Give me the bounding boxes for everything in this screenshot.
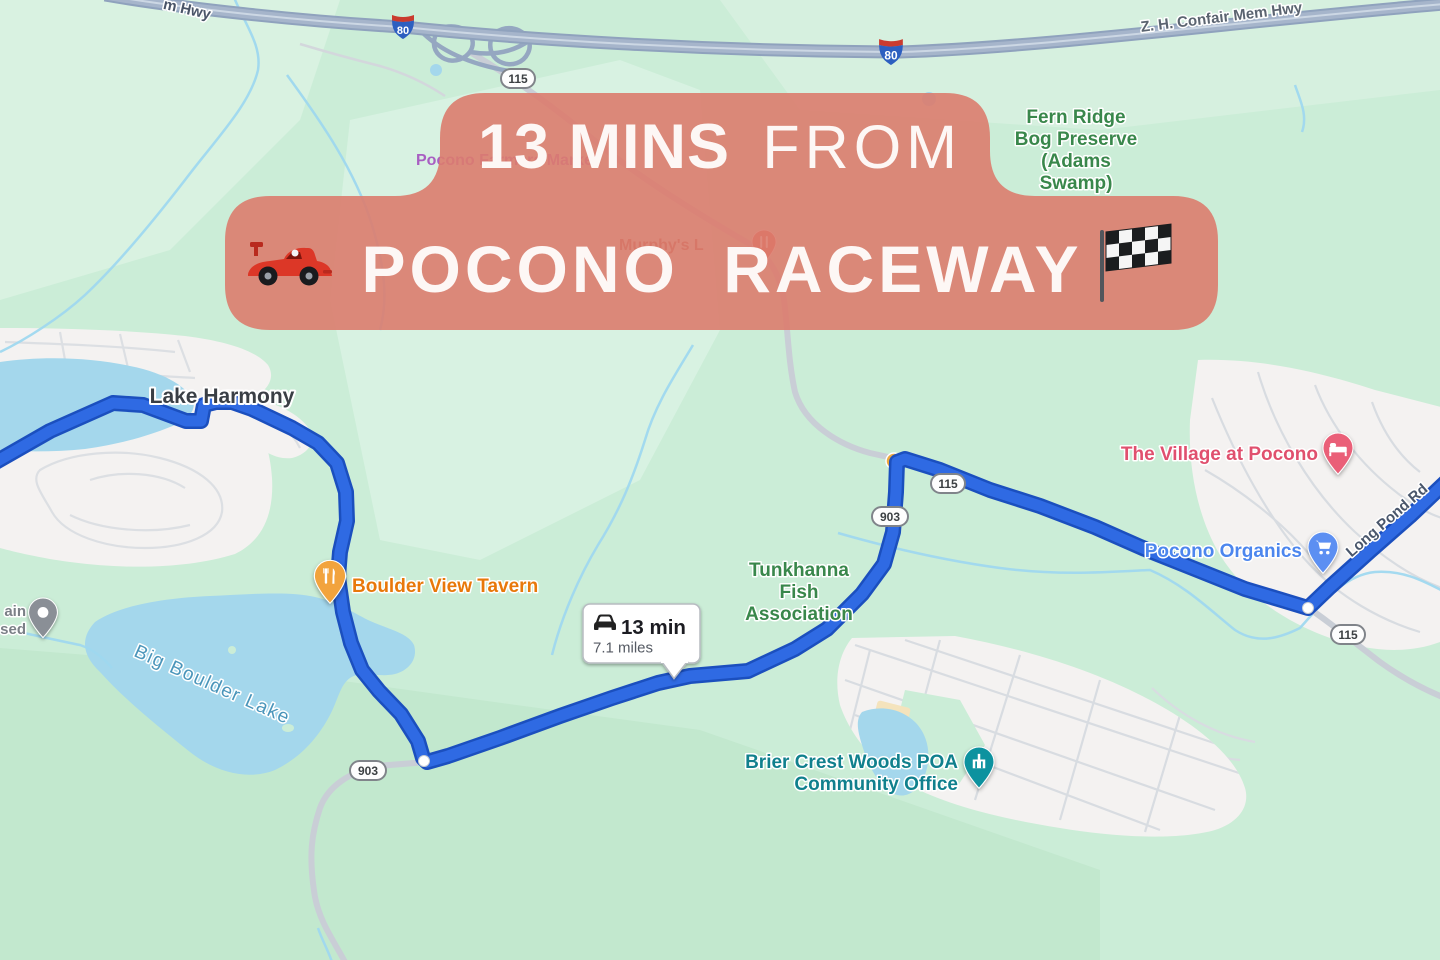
route-115-shield: 115 [501, 69, 535, 88]
route-duration: 13 min [621, 616, 686, 639]
boulder-view-tavern-label[interactable]: Boulder View Tavern [352, 576, 538, 597]
banner-connector-text: FROM [762, 113, 962, 181]
pond [430, 64, 442, 76]
route-waypoint-dot[interactable] [419, 756, 430, 767]
svg-text:Brier Crest Woods POA: Brier Crest Woods POA [745, 752, 958, 773]
svg-text:ain: ain [4, 603, 26, 620]
svg-text:sed: sed [0, 621, 26, 638]
pocono-organics-label[interactable]: Pocono Organics [1145, 541, 1302, 562]
svg-text:Swamp): Swamp) [1040, 173, 1113, 194]
route-115-shield: 115 [931, 474, 965, 493]
svg-text:Community Office: Community Office [794, 774, 958, 795]
route-distance: 7.1 miles [593, 640, 653, 657]
shield-number: 903 [880, 510, 900, 524]
route-903-shield: 903 [872, 507, 908, 526]
svg-text:(Adams: (Adams [1041, 151, 1111, 172]
route-903-shield: 903 [350, 761, 386, 780]
map-screenshot: m Hwy Z. H. Confair Mem Hwy Long Pond Rd… [0, 0, 1440, 960]
banner-duration-text: 13 MINS [478, 112, 730, 182]
shield-number: 115 [938, 477, 958, 491]
closed-poi-fragment-label: ain sed [0, 603, 26, 638]
banner-destination-text: POCONO RACEWAY [362, 232, 1083, 306]
svg-text:Tunkhanna: Tunkhanna [749, 560, 849, 581]
svg-text:Fern Ridge: Fern Ridge [1026, 107, 1125, 128]
map-canvas[interactable]: m Hwy Z. H. Confair Mem Hwy Long Pond Rd… [0, 0, 1440, 960]
shield-number: 903 [358, 764, 378, 778]
svg-text:Association: Association [745, 604, 853, 625]
svg-text:Fish: Fish [779, 582, 818, 603]
lake-harmony-label: Lake Harmony [150, 385, 295, 408]
village-at-pocono-label[interactable]: The Village at Pocono [1121, 444, 1318, 465]
route-waypoint-dot[interactable] [1303, 603, 1314, 614]
shield-number: 80 [884, 49, 898, 63]
svg-text:Bog Preserve: Bog Preserve [1015, 129, 1138, 150]
shield-number: 115 [508, 72, 528, 86]
route-115-shield: 115 [1331, 625, 1365, 644]
shield-number: 80 [397, 25, 409, 37]
shield-number: 115 [1338, 628, 1358, 642]
